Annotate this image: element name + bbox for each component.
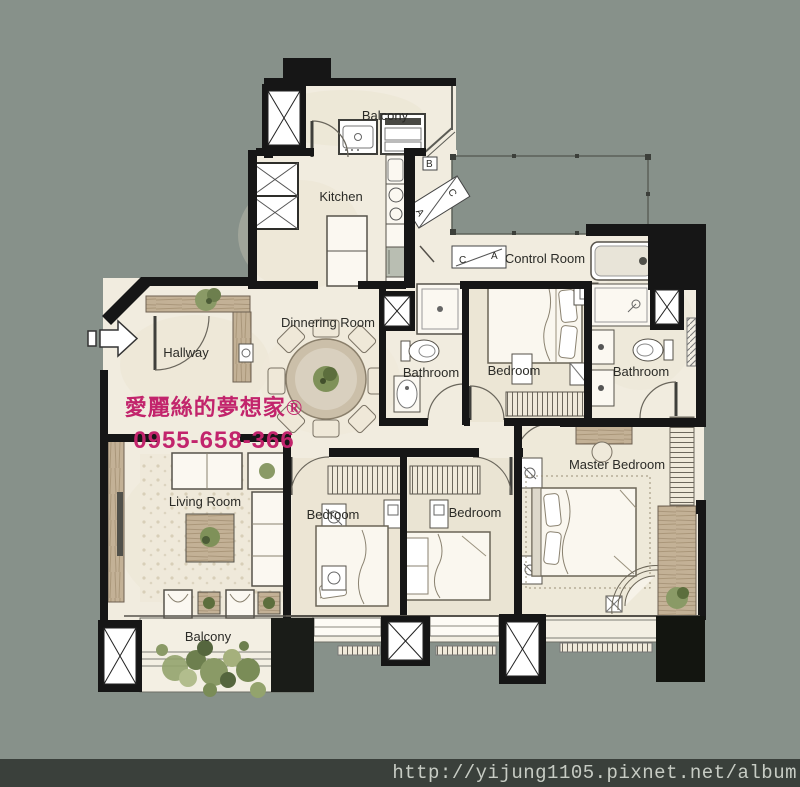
washer-icon xyxy=(339,120,377,154)
plant-icon xyxy=(200,527,220,547)
chaise xyxy=(252,492,286,586)
duct-b-box: B xyxy=(423,157,437,170)
column-x xyxy=(499,614,546,684)
svg-text:A: A xyxy=(491,251,498,262)
wardrobe xyxy=(328,466,402,494)
window-hatch xyxy=(687,318,696,366)
toilet-icon xyxy=(664,340,673,360)
label-bedroom-top: Bedroom xyxy=(488,363,541,378)
label-balcony-top: Balcony xyxy=(362,108,409,123)
shower-icon xyxy=(590,284,652,326)
column-solid xyxy=(656,616,705,682)
duct-b-label: B xyxy=(426,159,433,170)
plant-icon xyxy=(263,597,275,609)
svg-text:C: C xyxy=(459,255,466,266)
void-area xyxy=(450,154,651,235)
watermark-phone: 0955-658-366 xyxy=(133,427,294,454)
column-x xyxy=(650,284,684,330)
plant-icon xyxy=(203,597,215,609)
label-bathroom-left: Bathroom xyxy=(403,365,459,380)
plant-icon xyxy=(259,463,275,479)
column-x xyxy=(98,620,142,692)
label-balcony-bottom: Balcony xyxy=(185,629,232,644)
nightstand xyxy=(384,500,402,528)
column-x xyxy=(379,291,415,331)
label-control-room: Control Room xyxy=(505,251,585,266)
watermark-brand: 愛麗絲的夢想家® xyxy=(125,395,303,420)
kitchen-cabinet xyxy=(252,163,298,229)
wardrobe xyxy=(506,392,590,416)
label-master-bedroom: Master Bedroom xyxy=(569,457,665,472)
wardrobe xyxy=(410,466,480,494)
duct-ca-box: C A xyxy=(452,246,506,268)
kitchen-counter xyxy=(386,155,405,286)
bed xyxy=(532,488,636,576)
nightstand xyxy=(430,500,448,528)
bed xyxy=(402,532,490,600)
watermark-url: http://yijung1105.pixnet.net/album xyxy=(392,762,800,784)
label-bedroom-br: Bedroom xyxy=(449,505,502,520)
scanned-floor-plan: B C A C A xyxy=(0,0,800,787)
tv-icon xyxy=(117,492,123,556)
label-bedroom-bl: Bedroom xyxy=(307,507,360,522)
bed xyxy=(488,283,582,363)
floor-plan: B C A C A xyxy=(0,0,800,787)
label-bathroom-right: Bathroom xyxy=(613,364,669,379)
column-x xyxy=(262,84,306,152)
label-hallway: Hallway xyxy=(163,345,209,360)
label-dinnering-room: Dinnering Room xyxy=(281,315,375,330)
intercom-icon xyxy=(239,344,253,362)
kitchen-island xyxy=(327,216,367,286)
column-x xyxy=(381,616,430,666)
watermark-url-bar: http://yijung1105.pixnet.net/album xyxy=(0,759,800,787)
label-kitchen: Kitchen xyxy=(319,189,362,204)
label-living-room: Living Room xyxy=(169,494,241,509)
window-hatch xyxy=(670,417,694,505)
column-solid xyxy=(271,618,314,692)
